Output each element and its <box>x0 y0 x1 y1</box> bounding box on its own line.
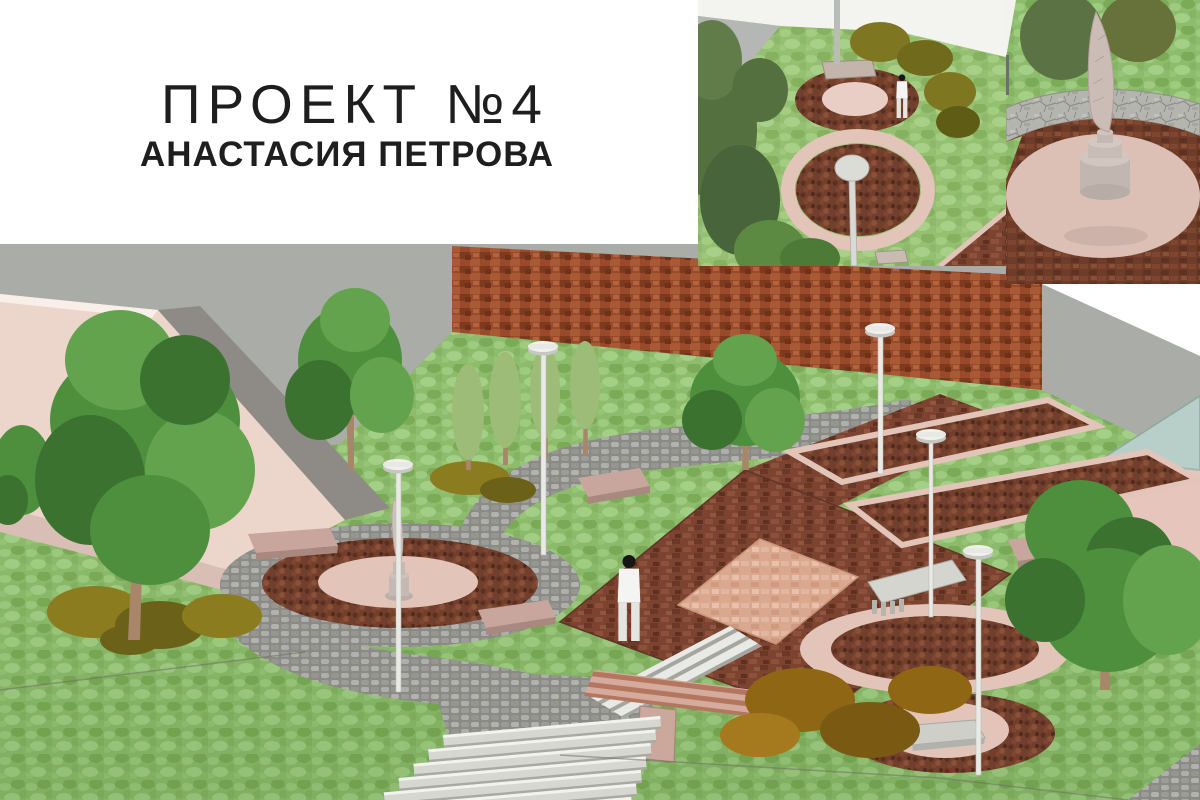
inset1-top-pole <box>834 0 840 64</box>
inset1-lamp-head <box>835 155 869 181</box>
main-park-plaza-render <box>0 244 1200 800</box>
inset-aerial-planters-view <box>673 0 1010 280</box>
inset2-shadow <box>1064 226 1148 246</box>
inset1-bottom-bench <box>875 250 908 264</box>
inset-quill-monument-closeup <box>1006 0 1200 284</box>
inset1-bench <box>822 60 876 79</box>
presentation-slide: ПРОЕКТ №4 АНАСТАСИЯ ПЕТРОВА <box>0 0 1200 800</box>
park-render-canvas <box>0 0 1200 800</box>
inset2-pole-sliver <box>1006 55 1009 95</box>
